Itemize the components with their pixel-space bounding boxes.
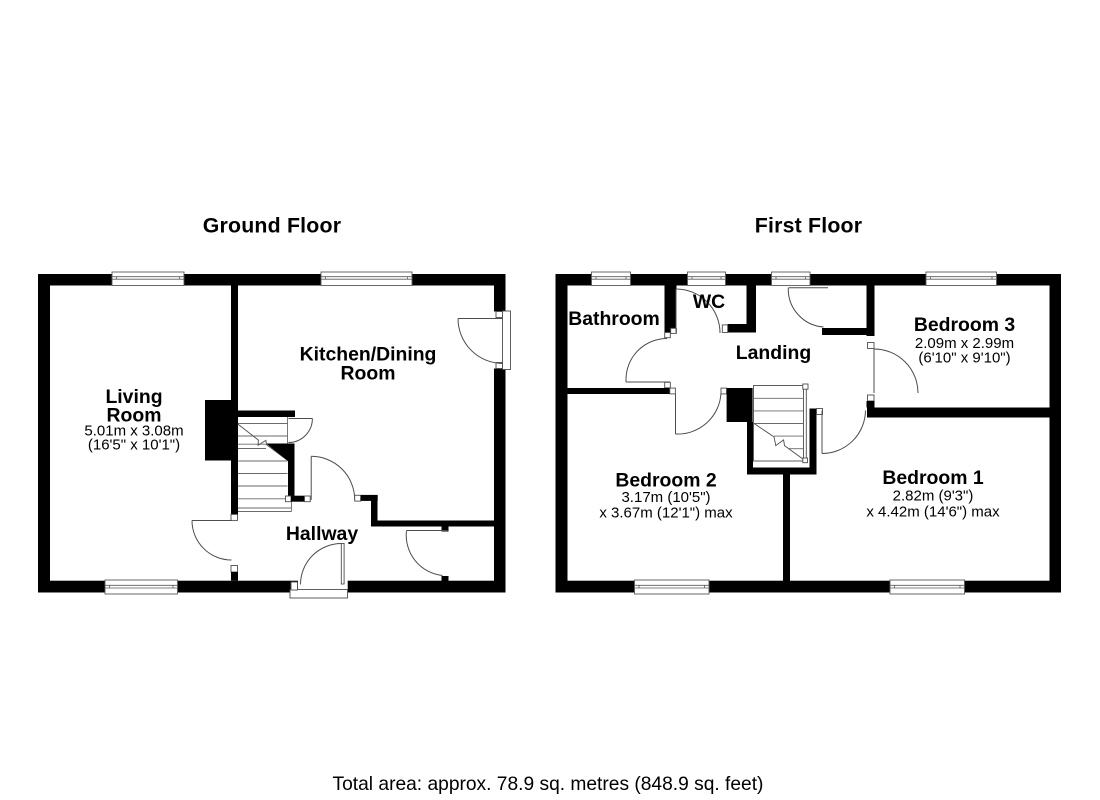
- svg-text:x 4.42m (14'6") max: x 4.42m (14'6") max: [866, 504, 1000, 521]
- svg-text:x 3.67m (12'1") max: x 3.67m (12'1") max: [599, 505, 733, 522]
- svg-text:Landing: Landing: [736, 342, 811, 364]
- svg-text:Room: Room: [341, 362, 396, 384]
- svg-text:(16'5" x 10'1"): (16'5" x 10'1"): [88, 437, 180, 454]
- svg-text:2.82m (9'3"): 2.82m (9'3"): [893, 488, 974, 505]
- svg-text:Bedroom 1: Bedroom 1: [882, 467, 983, 489]
- svg-text:Ground Floor: Ground Floor: [203, 214, 341, 238]
- svg-text:(6'10" x 9'10"): (6'10" x 9'10"): [918, 349, 1010, 366]
- svg-text:Hallway: Hallway: [286, 523, 358, 545]
- svg-text:First Floor: First Floor: [755, 214, 863, 238]
- svg-text:Total area: approx. 78.9 sq. m: Total area: approx. 78.9 sq. metres (848…: [333, 774, 764, 795]
- svg-text:Bathroom: Bathroom: [568, 308, 660, 330]
- svg-text:Bedroom 3: Bedroom 3: [914, 314, 1015, 336]
- svg-text:3.17m (10'5"): 3.17m (10'5"): [621, 489, 710, 506]
- svg-text:WC: WC: [693, 291, 725, 313]
